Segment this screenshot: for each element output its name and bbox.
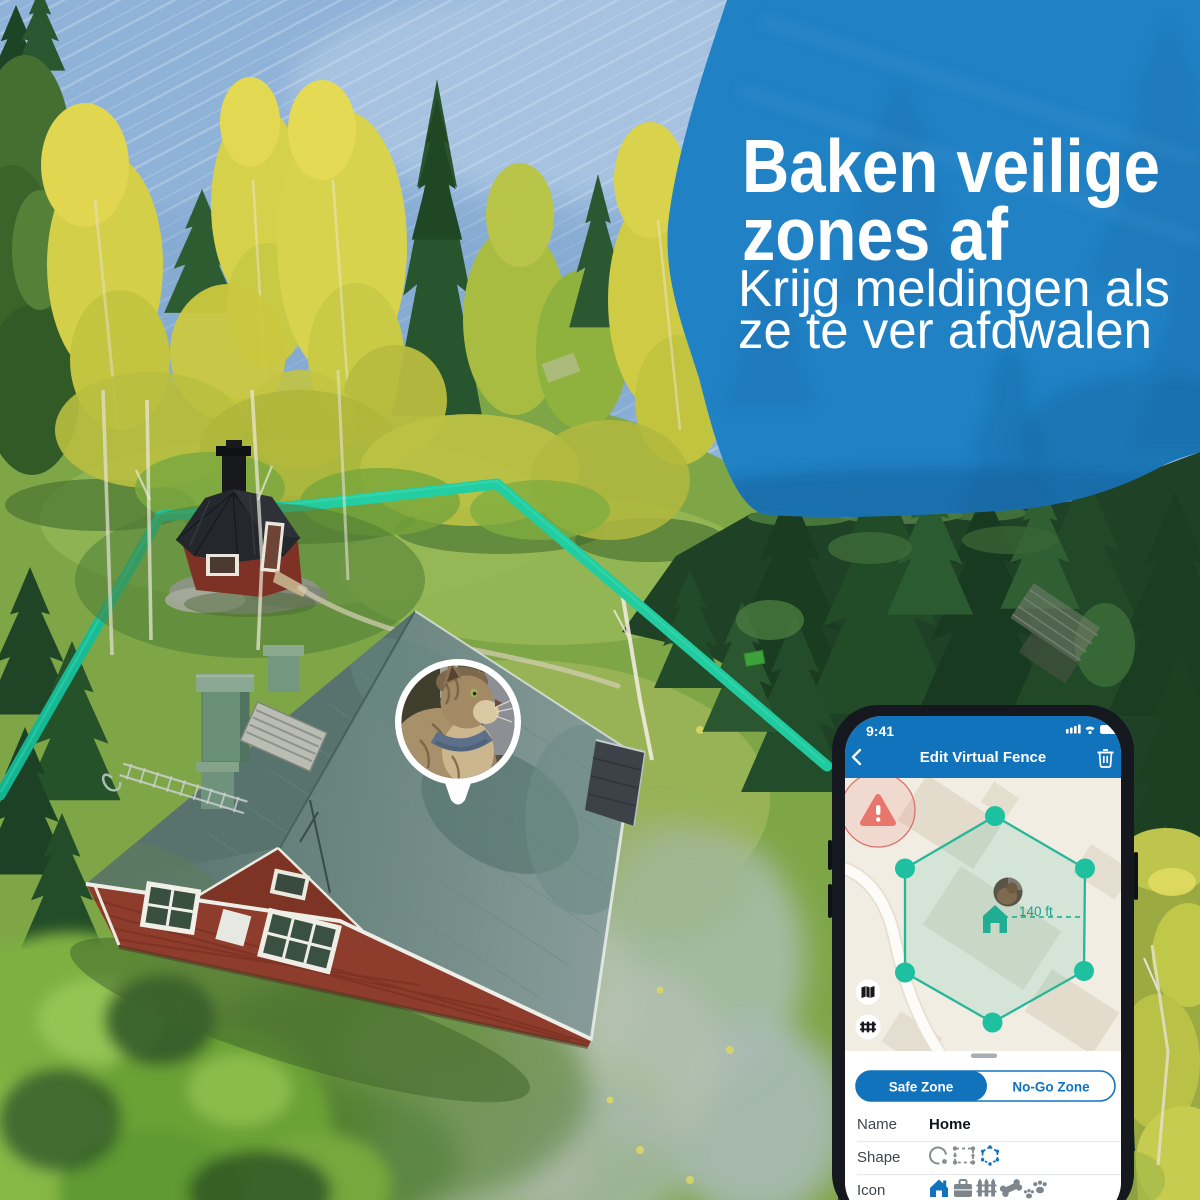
svg-text:No-Go Zone: No-Go Zone [1012,1080,1090,1095]
svg-text:Home: Home [929,1116,971,1133]
svg-text:Name: Name [857,1116,897,1133]
svg-text:Shape: Shape [857,1149,900,1166]
svg-text:Edit Virtual Fence: Edit Virtual Fence [920,749,1046,766]
svg-text:Safe Zone: Safe Zone [889,1080,954,1095]
svg-text:Icon: Icon [857,1182,885,1199]
svg-text:9:41: 9:41 [866,723,894,739]
svg-text:140 ft: 140 ft [1019,904,1053,919]
svg-text:ze te ver afdwalen: ze te ver afdwalen [738,302,1152,360]
